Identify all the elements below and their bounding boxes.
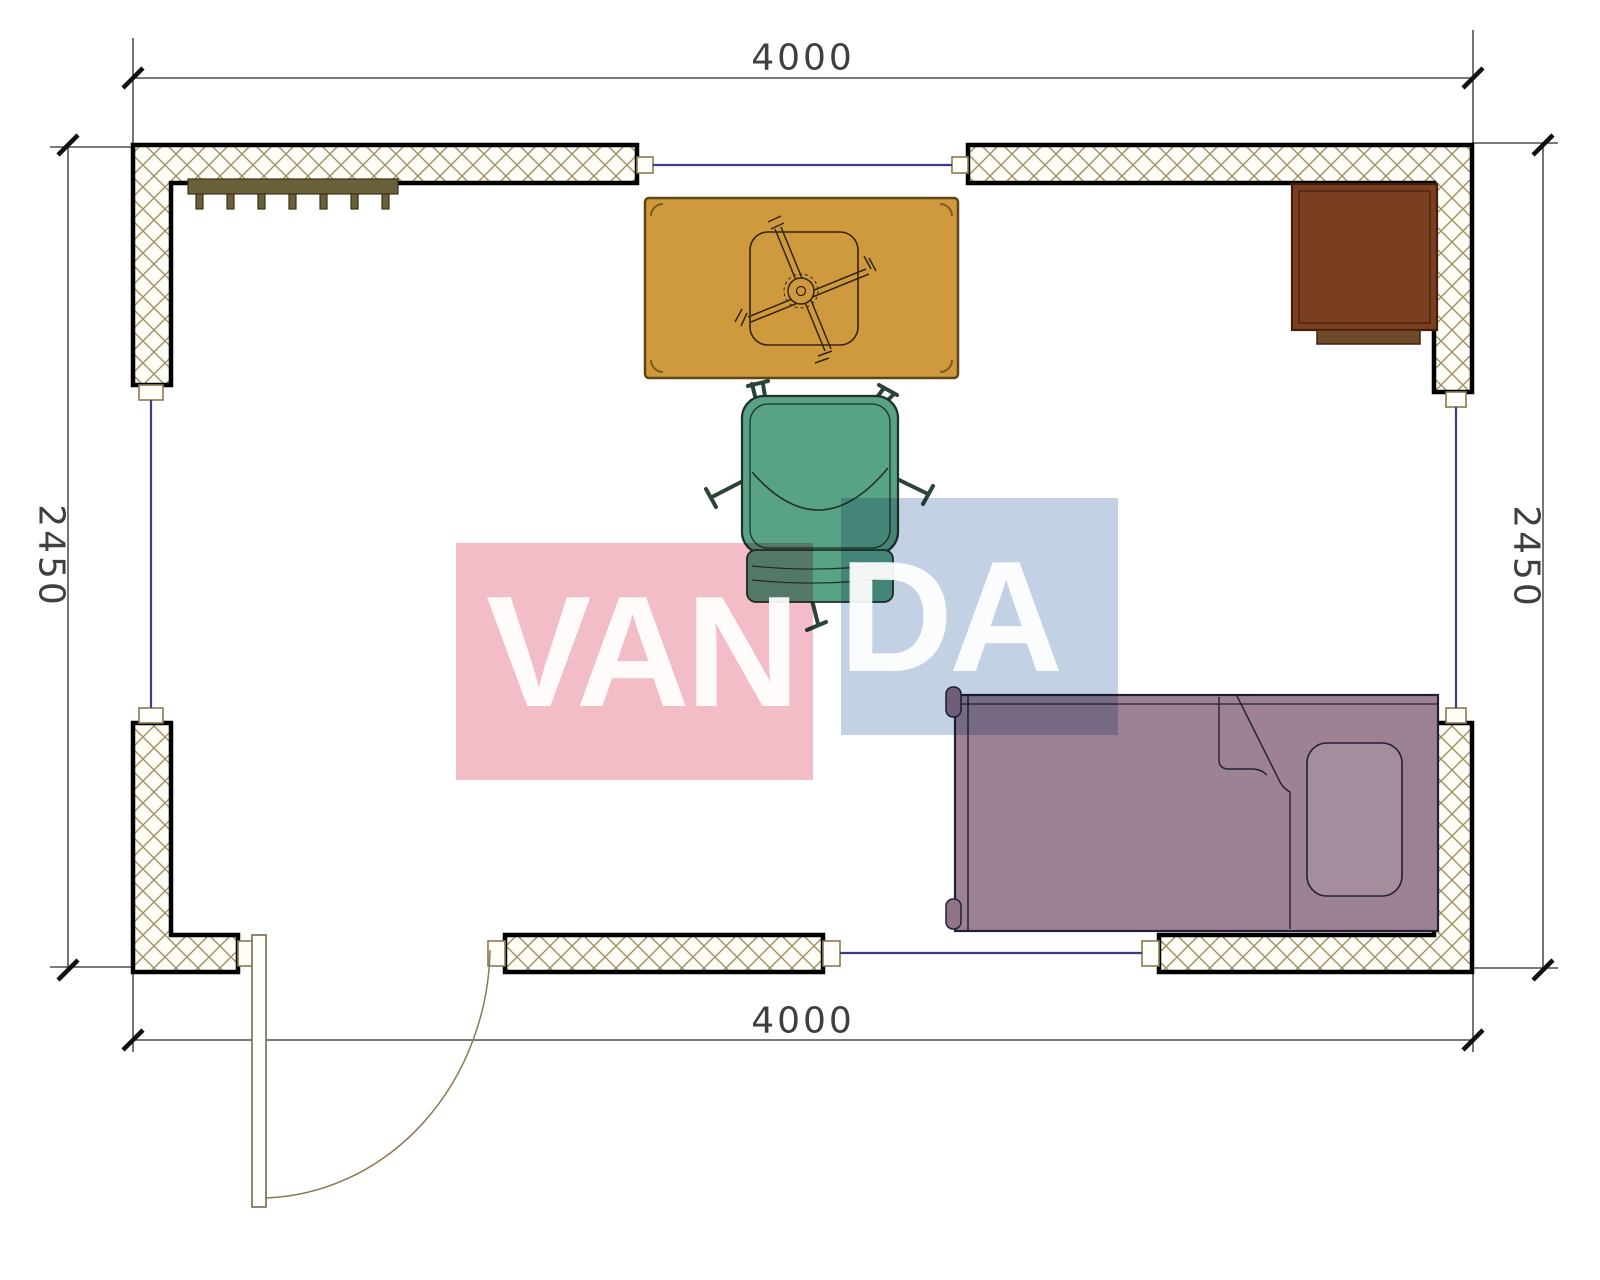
bed-post [946, 899, 961, 929]
chair-leg [706, 480, 745, 507]
dimension-label-bottom: 4000 [751, 1001, 855, 1042]
radiator [188, 179, 398, 209]
dimension-label-left: 2450 [31, 504, 72, 608]
window-jamb [1142, 941, 1159, 966]
door-swing-arc [266, 950, 490, 1198]
floor-plan-canvas: VAN DA 4000 4000 2450 2450 [0, 0, 1600, 1280]
window-jamb [823, 941, 840, 966]
window-jamb [637, 157, 653, 173]
dimension-label-right: 2450 [1506, 505, 1547, 609]
door-leaf [252, 935, 266, 1207]
watermark-text-da: DA [839, 538, 1059, 696]
window-jamb [1446, 708, 1466, 723]
window-jamb [952, 157, 968, 173]
window-jamb [139, 385, 163, 400]
wall-bottom-left [133, 723, 238, 972]
desk [1292, 184, 1437, 344]
desk-stool [1317, 330, 1420, 344]
door [238, 935, 505, 1207]
pillow [1307, 743, 1402, 896]
table [645, 198, 958, 378]
window-jamb [139, 708, 163, 723]
window-jamb [1446, 392, 1466, 407]
wall-bottom-middle [505, 935, 823, 972]
watermark-text-van: VAN [486, 573, 796, 731]
dimension-label-top: 4000 [751, 38, 855, 79]
